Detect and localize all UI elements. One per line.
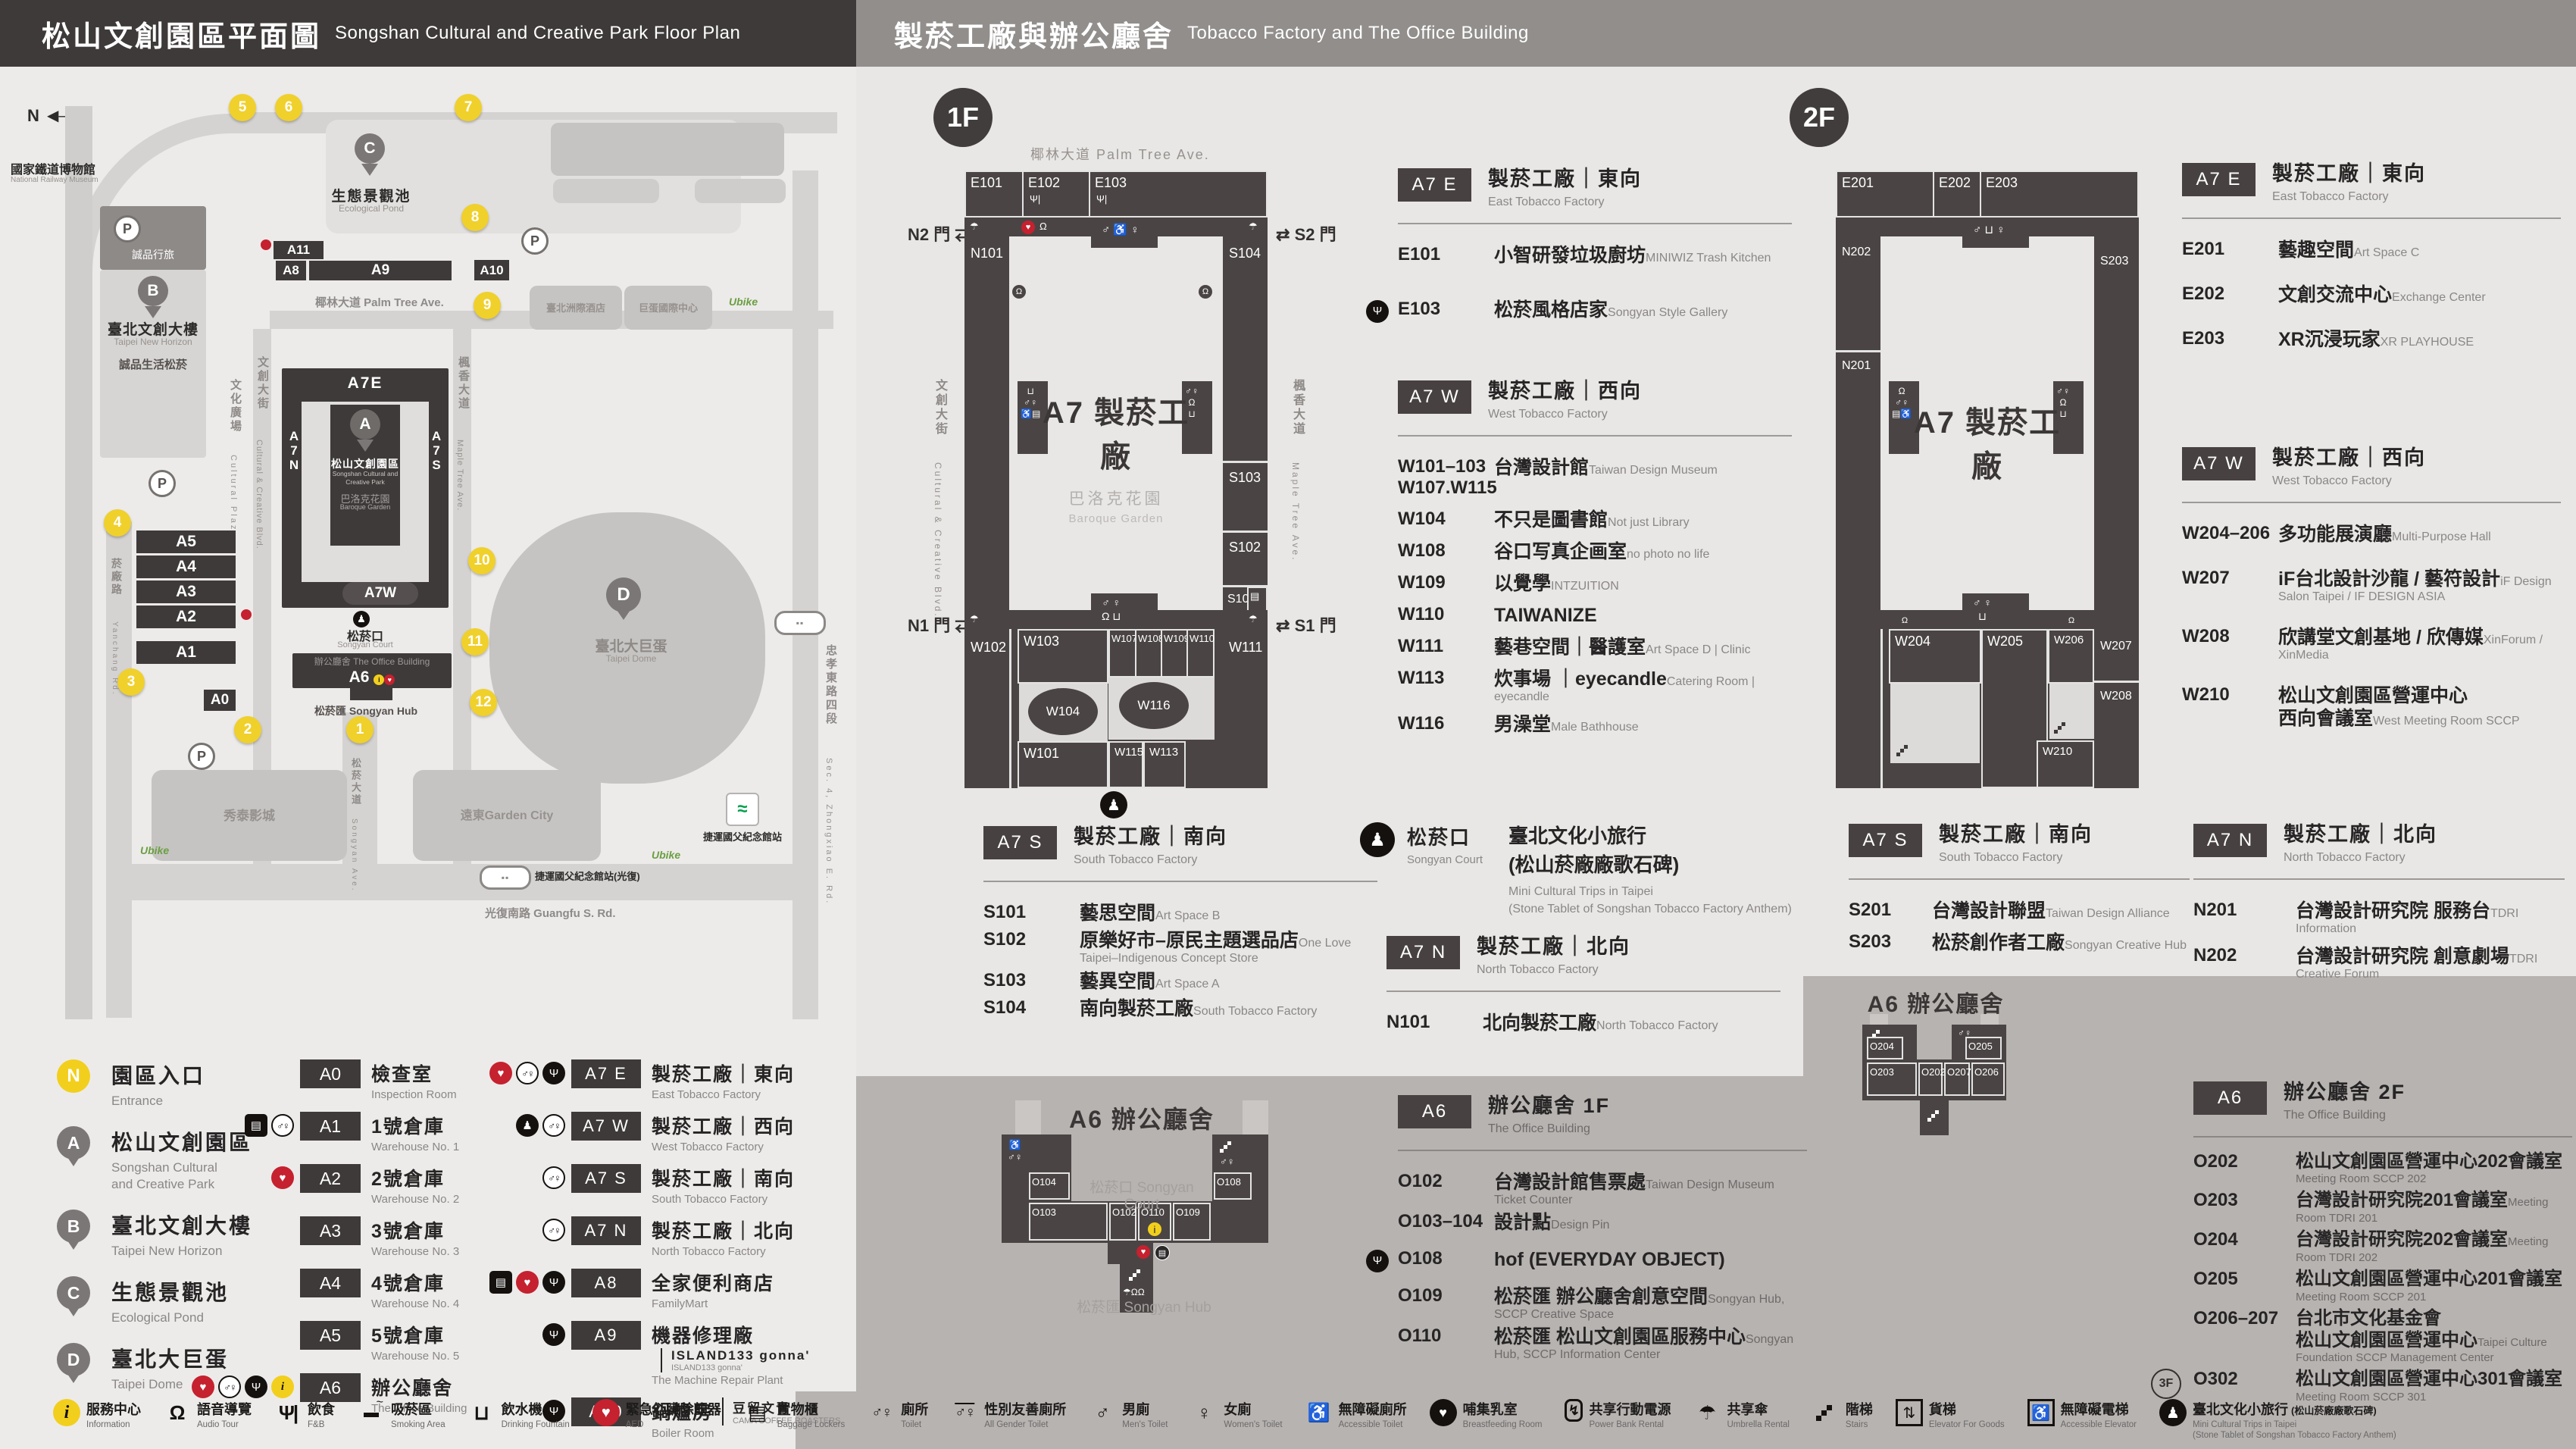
- directory-item: S103 藝異空間Art Space A: [983, 970, 1377, 993]
- strip-icon: [53, 1399, 80, 1426]
- toilet-icon: [542, 1219, 565, 1241]
- tenant-en: Not just Library: [1608, 516, 1690, 529]
- directory-item: S102 原樂好市–原民主題選品店One Love Taipei–Indigen…: [983, 929, 1377, 965]
- stairs-icon: [1896, 744, 1910, 756]
- plan2f-top-toilets: ♂ ⊔ ♀: [1962, 218, 2029, 248]
- fnb-icon: [1366, 1250, 1389, 1272]
- room-w102: W102: [971, 640, 1006, 656]
- tenant-zh: TAIWANIZE: [1494, 605, 1597, 626]
- room-code: O110: [1398, 1325, 1494, 1362]
- strip-icon: [951, 1399, 978, 1426]
- plan1f-street-left-en: Cultural & Creative Blvd.: [933, 462, 943, 618]
- map-sccp-en2: Creative Park: [326, 478, 405, 486]
- map-a6-tag: A6 i♥: [349, 668, 395, 687]
- room-code: E202: [2182, 283, 2278, 306]
- label-garden-city: 遠東Garden City: [413, 805, 601, 823]
- divider: [1009, 629, 1011, 788]
- room-w111: W111: [1229, 640, 1262, 656]
- map-hub-label: 松菸匯 Songyan Hub: [309, 703, 423, 718]
- plan1f-center-label: A7 製菸工廠 巴洛克花園 Baroque Garden: [1033, 388, 1199, 525]
- divider: [1880, 629, 1883, 788]
- tenant-en: Meeting Room SCCP 201: [2296, 1291, 2426, 1303]
- label-cultural-plaza-zh: 文化廣場: [227, 379, 243, 433]
- pin-d: D: [606, 577, 641, 612]
- plan2f-cell-1: [1890, 684, 1980, 763]
- directory-item: W108 谷口写真企画室no photo no life: [1398, 540, 1792, 563]
- room-code: W116: [1398, 713, 1494, 736]
- tenant-zh: 台灣設計館: [1494, 457, 1589, 478]
- room-w109: W109: [1161, 629, 1188, 678]
- ne-annex-2: [695, 179, 786, 203]
- directory-item: N101 北向製菸工廠North Tobacco Factory: [1386, 1012, 1780, 1034]
- legend-strip-item: 飲水機 Drinking Fountain: [468, 1399, 570, 1429]
- legend-strip-item: 無障礙廁所 Accessible Toilet: [1305, 1399, 1407, 1429]
- tenant-zh: 松菸匯 松山文創園區服務中心: [1494, 1326, 1746, 1347]
- room-e101: E101: [964, 171, 1024, 218]
- tenant-en: Art Space C: [2354, 246, 2419, 259]
- metro-logo-icon: ≈: [726, 793, 759, 826]
- tenant-en: Songyan Creative Hub: [2065, 939, 2187, 952]
- ne-building: [551, 123, 784, 176]
- section-title-zh: 辦公廳舍 1F: [1488, 1095, 1610, 1118]
- strip-icon: [1430, 1399, 1457, 1426]
- strip-text: 吸菸區 Smoking Area: [391, 1399, 445, 1429]
- aed-icon: [241, 609, 252, 620]
- building-code-badge: A7 E: [571, 1059, 641, 1088]
- room-code: W110: [1398, 604, 1494, 627]
- label-mrt: 捷運國父紀念館站: [688, 829, 797, 843]
- directory-item: E203 XR沉浸玩家XR PLAYHOUSE: [2182, 328, 2561, 351]
- section-1f-a6: A6 辦公廳舍 1FThe Office Building O102 台灣設計館…: [1398, 1095, 1807, 1366]
- directory-item: O108 hof (EVERYDAY OBJECT): [1398, 1248, 1807, 1282]
- tenant-zh: XR沉浸玩家: [2278, 329, 2381, 350]
- plan1f-mid-toilets: ♂ ♀Ω ⊔: [1091, 593, 1158, 629]
- directory-item: O205 松山文創園區營運中心201會議室Meeting Room SCCP 2…: [2193, 1269, 2572, 1304]
- directory-item: O110 松菸匯 松山文創園區服務中心Songyan Hub, SCCP Inf…: [1398, 1325, 1807, 1362]
- audio-icon: Ω: [1012, 285, 1026, 299]
- tenant-zh: 藝巷空間｜醫護室: [1494, 637, 1646, 658]
- legend-strip-item: 共享傘 Umbrella Rental: [1693, 1399, 1789, 1429]
- building-name: 2號倉庫Warehouse No. 2: [371, 1164, 459, 1206]
- label-dome-en: Taipei Dome: [567, 653, 696, 664]
- directory-item: W116 男澡堂Male Bathhouse: [1398, 713, 1792, 736]
- divider: [1398, 435, 1792, 437]
- section-title-en: West Tobacco Factory: [1488, 408, 1642, 421]
- room-o206: O206: [1971, 1062, 2005, 1096]
- section-title-zh: 製菸工廠｜北向: [1477, 936, 1630, 959]
- building-code-badge: A3: [300, 1216, 361, 1245]
- tenant-zh: 男澡堂: [1494, 714, 1551, 735]
- building-name: 製菸工廠｜西向 West Tobacco Factory: [652, 1112, 795, 1153]
- toilet-icon: [218, 1375, 241, 1398]
- map-gate: 3: [117, 668, 145, 696]
- divider: [983, 881, 1377, 882]
- map-gate: 4: [104, 509, 131, 537]
- tenant-en: Art Space A: [1155, 978, 1220, 991]
- road-guangfu: [106, 864, 818, 900]
- tenant-zh: 設計點: [1494, 1212, 1551, 1233]
- room-code: O203: [2193, 1190, 2296, 1225]
- ubike-icon: Ubike: [140, 844, 169, 856]
- tenant-zh: 多功能展演廳: [2278, 524, 2392, 545]
- section-badge: A7 E: [2182, 163, 2256, 196]
- facility-icons: [476, 1112, 565, 1137]
- garden-label-zh: 巴洛克花園: [1033, 487, 1199, 509]
- map-bar-a3: A3: [136, 581, 236, 603]
- section-title-en: East Tobacco Factory: [1488, 196, 1642, 209]
- toilet-icon: [516, 1062, 539, 1084]
- legend-strip-item: 吸菸區 Smoking Area: [358, 1399, 445, 1429]
- map-a7e-label: A7E: [327, 374, 403, 393]
- section-title-zh: 製菸工廠｜西向: [2272, 447, 2426, 470]
- strip-text: 緊急心臟除顫器 AED: [626, 1399, 721, 1429]
- legend-building-item: A7 S 製菸工廠｜南向 South Tobacco Factory: [476, 1164, 855, 1206]
- building-name: 製菸工廠｜北向 North Tobacco Factory: [652, 1216, 795, 1258]
- map-pin-icon: B: [57, 1210, 90, 1243]
- directory-item: S203 松菸創作者工廠Songyan Creative Hub: [1849, 931, 2190, 954]
- right-title-en: Tobacco Factory and The Office Building: [1187, 23, 1529, 44]
- map-gate: 1: [346, 716, 374, 743]
- map-bar-a4: A4: [136, 556, 236, 578]
- divider: [2182, 502, 2561, 503]
- tenant-zh: 台灣設計研究院 創意劇場: [2296, 946, 2509, 967]
- room-code: W210: [2182, 684, 2278, 730]
- section-title-zh: 製菸工廠｜南向: [1939, 824, 2093, 847]
- tenant-zh: 小智研發垃圾廚坊: [1494, 245, 1646, 266]
- plan1f-street-left-zh: 文創大街: [930, 379, 949, 437]
- tenant-en: West Meeting Room SCCP: [2373, 715, 2520, 728]
- room-w206: W206: [2048, 629, 2094, 684]
- room-w108: W108: [1135, 629, 1162, 678]
- section-title-zh: 辦公廳舍 2F: [2284, 1081, 2406, 1104]
- strip-icon: [1190, 1399, 1218, 1426]
- section-2f-a6: A6 辦公廳舍 2FThe Office Building O202 松山文創園…: [2193, 1081, 2572, 1408]
- building-code-badge: A7 W: [571, 1112, 641, 1141]
- map-bar-a0: A0: [204, 690, 236, 711]
- section-2f-a7s: A7 S 製菸工廠｜南向South Tobacco Factory S201 台…: [1849, 824, 2190, 963]
- info-icon: i: [1148, 1222, 1161, 1236]
- section-title-zh: 製菸工廠｜西向: [1488, 380, 1642, 403]
- directory-item: W208 欣講堂文創基地 / 欣傳媒XinForum / XinMedia: [2182, 626, 2561, 662]
- map-pin-icon: A: [57, 1126, 90, 1160]
- tenant-side-label: ISLAND133 gonna'ISLAND133 gonna': [661, 1348, 810, 1372]
- legend-strip-item: 階梯 Stairs: [1812, 1399, 1873, 1429]
- directory-item: O202 松山文創園區營運中心202會議室Meeting Room SCCP 2…: [2193, 1151, 2572, 1187]
- label-dome-intl: 巨蛋國際中心: [624, 300, 712, 315]
- directory-item: S104 南向製菸工廠South Tobacco Factory: [983, 997, 1377, 1020]
- room-code: E203: [2182, 328, 2278, 351]
- room-o204: O204: [1867, 1037, 1903, 1059]
- strip-icon: [1089, 1399, 1116, 1426]
- section-1f-a7s: A7 S 製菸工廠｜南向South Tobacco Factory S101 藝…: [983, 826, 1377, 1025]
- strip-text: 飲食 F&B: [308, 1399, 335, 1429]
- room-s203: S203: [2100, 255, 2128, 268]
- tenant-en: INTZUITION: [1551, 580, 1619, 593]
- label-songyan-ave-zh: 松菸大道: [349, 758, 363, 806]
- building-code-badge: A7 N: [571, 1216, 641, 1245]
- room-code: W108: [1398, 540, 1494, 563]
- room-e202: E202: [1933, 171, 1981, 218]
- strip-text: 無障礙電梯 Accessible Elevator: [2061, 1399, 2137, 1429]
- tenant-en: Taiwan Design Alliance: [2046, 907, 2170, 920]
- court-description: 臺北文化小旅行 (松山菸廠廠歌石碑) Mini Cultural Trips i…: [1508, 822, 1792, 918]
- label-new-horizon-en: Taipei New Horizon: [100, 336, 206, 347]
- room-n201: N201: [1842, 359, 1871, 373]
- room-w208: W208: [2100, 690, 2132, 703]
- legend-strip-item: 廁所 Toilet: [868, 1399, 928, 1429]
- room-code: S201: [1849, 900, 1932, 922]
- building-code-badge: A6: [300, 1373, 361, 1402]
- strip-text: 廁所 Toilet: [901, 1399, 928, 1429]
- room-code: W113: [1398, 668, 1494, 704]
- strip-text: 臺北文化小旅行(松山菸廠廠歌石碑) Mini Cultural Trips in…: [2193, 1399, 2396, 1440]
- room-w113: W113: [1143, 741, 1186, 788]
- tenant-zh: 藝趣空間: [2278, 239, 2354, 261]
- directory-item: N201 台灣設計研究院 服務台TDRI Information: [2193, 900, 2565, 936]
- audio-icon: Ω: [2065, 614, 2078, 627]
- label-cultural-plaza-en: Cultural Plaza: [229, 455, 238, 538]
- strip-text: 男廁 Men's Toilet: [1122, 1399, 1168, 1429]
- strip-icon: [592, 1399, 620, 1426]
- legend-strip-item: 性別友善廁所 All Gender Toilet: [951, 1399, 1066, 1429]
- map-a7w-label: A7W: [342, 582, 418, 605]
- room-w104: W104: [1028, 688, 1098, 735]
- map-bar-a9: A9: [309, 261, 452, 280]
- locker-icon: [489, 1271, 512, 1294]
- stairs-icon: [1927, 1109, 1941, 1122]
- aed-icon: [489, 1062, 512, 1084]
- room-o205: O205: [1965, 1037, 2002, 1059]
- section-title-en: West Tobacco Factory: [2272, 474, 2426, 488]
- tenant-en: Songyan Style Gallery: [1608, 306, 1727, 319]
- strip-icon: [1305, 1399, 1333, 1426]
- strip-icon: [274, 1399, 302, 1426]
- legend-pin-text: 園區入口Entrance: [111, 1059, 205, 1109]
- room-w115: W115: [1108, 741, 1143, 788]
- legend-strip-item: 置物櫃 Baggage Lockers: [744, 1399, 846, 1429]
- building-code-badge: A8: [571, 1269, 641, 1297]
- left-header: 松山文創園區平面圖 Songshan Cultural and Creative…: [0, 0, 856, 67]
- directory-item: W111 藝巷空間｜醫護室Art Space D | Clinic: [1398, 636, 1792, 659]
- map-bar-a5: A5: [136, 530, 236, 553]
- room-code: S101: [983, 902, 1080, 925]
- label-railway-museum-en: National Railway Museum: [11, 176, 124, 184]
- room-n101: N101: [971, 246, 1003, 261]
- floor-badge-2f: 2F: [1790, 88, 1849, 147]
- a6f1-stub: [1015, 1100, 1041, 1135]
- audio-icon: Ω: [1039, 221, 1047, 233]
- tenant-zh: 欣講堂文創基地 / 欣傳媒: [2278, 627, 2484, 648]
- strip-icon: [868, 1399, 895, 1426]
- strip-icon: [164, 1399, 191, 1426]
- directory-item: W109 以覺學INTZUITION: [1398, 572, 1792, 595]
- tenant-zh: 台灣設計研究院 服務台: [2296, 900, 2490, 922]
- room-code: N202: [2193, 945, 2296, 981]
- directory-item: E101 小智研發垃圾廚坊MINIWIZ Trash Kitchen: [1398, 244, 1792, 267]
- strip-text: 共享行動電源 Power Bank Rental: [1589, 1399, 1671, 1429]
- info-icon: [271, 1375, 294, 1398]
- room-w101: W101: [1018, 741, 1108, 788]
- label-guangfu: 光復南路 Guangfu S. Rd.: [485, 905, 616, 921]
- room-code: S102: [983, 929, 1080, 965]
- section-title-en: North Tobacco Factory: [1477, 963, 1630, 977]
- map-gate: 5: [229, 94, 256, 121]
- label-pond-en: Ecological Pond: [318, 203, 424, 214]
- room-code: E201: [2182, 239, 2278, 261]
- legend-buildings-b: A7 E 製菸工廠｜東向 East Tobacco Factory A7 W 製…: [476, 1059, 855, 1449]
- facility-icons: [476, 1059, 565, 1084]
- plan1f-street-right-zh: 楓香大道: [1288, 379, 1306, 437]
- strip-text: 階梯 Stairs: [1846, 1399, 1873, 1429]
- stairs-icon: [1129, 1269, 1143, 1281]
- room-e102: E102Ψ|: [1022, 171, 1090, 218]
- room-e103: E103Ψ|: [1089, 171, 1268, 218]
- map-pin-icon: D: [57, 1343, 90, 1376]
- tenant-en: Taiwan Design Museum: [1589, 464, 1718, 477]
- facility-legend-strip: 服務中心 Information 語音導覽 Audio Tour 飲食: [53, 1399, 2396, 1440]
- pin-c: C: [355, 133, 385, 164]
- fnb-icon: [1366, 300, 1389, 323]
- section-1f-a7e: A7 E 製菸工廠｜東向East Tobacco Factory E101 小智…: [1398, 168, 1792, 353]
- tenant-en: XR PLAYHOUSE: [2381, 336, 2474, 349]
- map-sccp-en1: Songshan Cultural and: [326, 470, 405, 477]
- stairs-icon: [1220, 1141, 1233, 1153]
- umbrella-icon: ☂: [970, 221, 979, 233]
- tenant-zh: 台灣設計館售票處: [1494, 1172, 1646, 1193]
- divider: [2094, 681, 2139, 683]
- plan2f-mid-toilets: ♂ ♀⊔: [1962, 593, 2029, 629]
- tenant-zh: 松山文創園區營運中心301會議室: [2296, 1369, 2562, 1389]
- a6f1-stub: [1243, 1100, 1268, 1135]
- section-badge: A7 W: [2182, 447, 2256, 480]
- room-o203: O203: [1867, 1062, 1917, 1096]
- room-code: O109: [1398, 1285, 1494, 1322]
- section-title-zh: 製菸工廠｜東向: [2272, 163, 2426, 186]
- road-rail-corridor: [65, 106, 92, 1019]
- section-title-en: East Tobacco Factory: [2272, 190, 2426, 204]
- legend-building-item: A8 全家便利商店 FamilyMart: [476, 1269, 855, 1310]
- tenant-en: MINIWIZ Trash Kitchen: [1646, 252, 1771, 264]
- umbrella-icon: ☂: [970, 613, 979, 625]
- tenant-zh: hof (EVERYDAY OBJECT): [1494, 1249, 1725, 1270]
- parking-icon: P: [114, 215, 141, 243]
- label-railway-museum-zh: 國家鐵道博物館: [11, 159, 124, 177]
- stairs-icon: [2054, 721, 2068, 734]
- directory-item: E201 藝趣空間Art Space C: [2182, 239, 2561, 261]
- room-o202: O202: [1918, 1062, 1943, 1096]
- audio-icon: Ω: [1199, 285, 1212, 299]
- map-gate: 11: [461, 628, 489, 656]
- fnb-icon: [542, 1271, 565, 1294]
- right-header: 製菸工廠與辦公廳舍 Tobacco Factory and The Office…: [856, 0, 2576, 67]
- map-gate: 10: [468, 547, 496, 574]
- ubike-icon: Ubike: [729, 296, 758, 308]
- label-eslite-hotel: 誠品行旅: [100, 247, 206, 262]
- plan2f-center-label: A7 製菸工廠: [1904, 398, 2071, 486]
- section-title-en: The Office Building: [1488, 1122, 1610, 1136]
- directory-item: W104 不只是圖書館Not just Library: [1398, 509, 1792, 531]
- legend-strip-item: 共享行動電源 Power Bank Rental: [1565, 1399, 1671, 1429]
- umbrella-icon: ☂: [1249, 221, 1258, 233]
- section-title-en: South Tobacco Factory: [1939, 851, 2093, 865]
- tenant-zh: 松菸創作者工廠: [1932, 932, 2065, 953]
- facility-icons: [205, 1059, 294, 1062]
- fnb-icon: [542, 1323, 565, 1346]
- legend-strip-item: 男廁 Men's Toilet: [1089, 1399, 1168, 1429]
- gate-s2: ⇄ S2 門: [1276, 221, 1336, 246]
- room-code: S203: [1849, 931, 1932, 954]
- legend-building-item: A9 機器修理廠ISLAND133 gonna'ISLAND133 gonna'…: [476, 1321, 855, 1387]
- directory-item: O103–104 設計點Design Pin: [1398, 1211, 1807, 1244]
- strip-icon: [2159, 1399, 2187, 1426]
- directory-item: W101–103 W107.W115 台灣設計館Taiwan Design Mu…: [1398, 456, 1792, 500]
- room-o108: O108: [1214, 1172, 1252, 1200]
- entrance-circle-icon: N: [57, 1059, 90, 1093]
- directory-item: W204–206 多功能展演廳Multi-Purpose Hall: [2182, 523, 2561, 546]
- room-n202: N202: [1842, 246, 1871, 259]
- room-code: W111: [1398, 636, 1494, 659]
- building-name: 1號倉庫Warehouse No. 1: [371, 1112, 459, 1153]
- legend-building-item: A7 W 製菸工廠｜西向 West Tobacco Factory: [476, 1112, 855, 1153]
- strip-text: 語音導覽 Audio Tour: [197, 1399, 252, 1429]
- room-code: E101: [1398, 244, 1494, 267]
- map-gate: 6: [275, 94, 302, 121]
- room-code: S103: [983, 970, 1080, 993]
- legend-building-item: A7 N 製菸工廠｜北向 North Tobacco Factory: [476, 1216, 855, 1258]
- room-code: O204: [2193, 1229, 2296, 1265]
- directory-item: W113 炊事場 ｜eyecandleCatering Room | eyeca…: [1398, 668, 1792, 704]
- tenant-en: Male Bathhouse: [1551, 721, 1639, 734]
- statue-icon: ♟: [1100, 791, 1127, 818]
- tenant-zh: 文創交流中心: [2278, 284, 2392, 305]
- aed-icon: [261, 239, 271, 250]
- statue-icon: [516, 1114, 539, 1137]
- plan1f-street-top: 椰林大道 Palm Tree Ave.: [1030, 144, 1210, 164]
- label-mrt-exit: 捷運國父紀念館站(光復): [535, 868, 640, 883]
- tenant-zh: 松菸匯 辦公廳舍創意空間: [1494, 1286, 1708, 1307]
- legend-building-item: A7 E 製菸工廠｜東向 East Tobacco Factory: [476, 1059, 855, 1101]
- label-cinema: 秀泰影城: [152, 805, 347, 824]
- directory-item: O203 台灣設計研究院201會議室Meeting Room TDRI 201: [2193, 1190, 2572, 1225]
- plan1f-top-toilets: ♂ ♿ ♀: [1091, 218, 1158, 248]
- map-gate: 2: [234, 716, 261, 743]
- label-maple-ave-en: Maple Tree Ave.: [455, 440, 464, 511]
- divider: [2193, 1136, 2572, 1138]
- room-code: O103–104: [1398, 1211, 1494, 1244]
- strip-icon: [1812, 1399, 1840, 1426]
- bus-stop-icon: ▪▪: [774, 611, 826, 635]
- map-a7s-label: A7S: [429, 429, 444, 472]
- section-1f-a7n: A7 N 製菸工廠｜北向North Tobacco Factory N101 北…: [1386, 936, 1780, 1039]
- pin-b: B: [138, 276, 168, 306]
- tenant-zh: 藝異空間: [1080, 971, 1155, 992]
- map-sccp-zh: 松山文創園區: [330, 456, 400, 471]
- map-a6-stem: [350, 688, 392, 700]
- directory-item: S101 藝思空間Art Space B: [983, 902, 1377, 925]
- section-badge: A7 S: [983, 826, 1057, 859]
- section-2f-a7n: A7 N 製菸工廠｜北向North Tobacco Factory N201 台…: [2193, 824, 2565, 991]
- building-code-badge: A2: [300, 1164, 361, 1193]
- directory-item: S201 台灣設計聯盟Taiwan Design Alliance: [1849, 900, 2190, 922]
- map-bar-a11: A11: [274, 241, 324, 259]
- section-2f-a7w: A7 W 製菸工廠｜西向West Tobacco Factory W204–20…: [2182, 447, 2561, 752]
- label-songyan-ave-en: Songyan Ave.: [350, 818, 358, 893]
- building-code-badge: A0: [300, 1059, 361, 1088]
- directory-item: O109 松菸匯 辦公廳舍創意空間Songyan Hub, SCCP Creat…: [1398, 1285, 1807, 1322]
- building-code-badge: A7 S: [571, 1164, 641, 1193]
- room-w110: W110: [1186, 629, 1215, 678]
- room-code: O108: [1398, 1248, 1494, 1282]
